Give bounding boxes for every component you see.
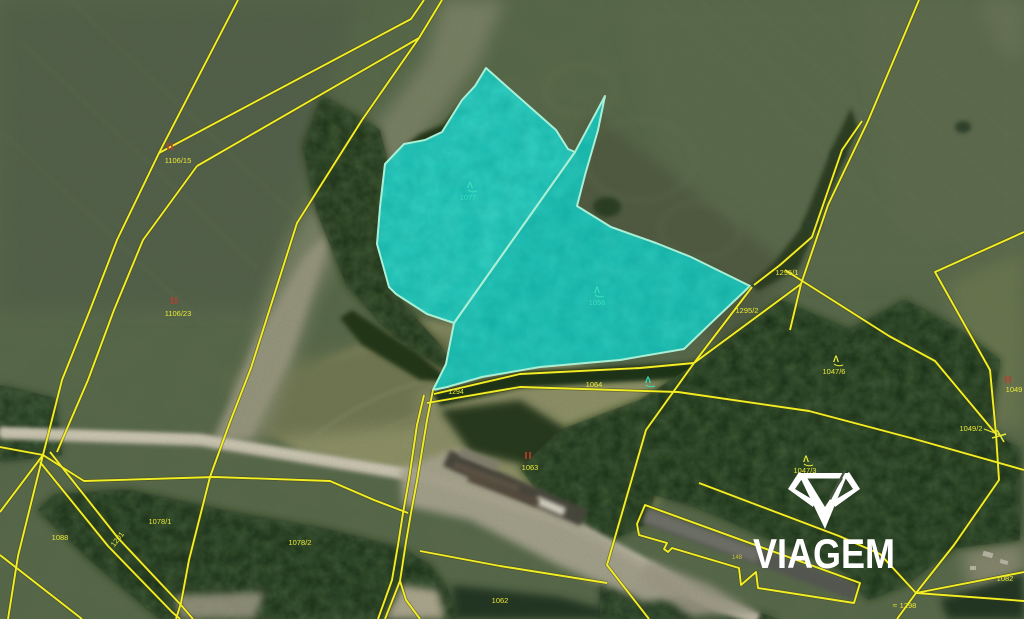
svg-text:1298: 1298: [900, 601, 917, 610]
svg-text:1064: 1064: [586, 380, 603, 389]
svg-text:1078/2: 1078/2: [289, 538, 312, 547]
svg-text:1047/6: 1047/6: [823, 367, 846, 376]
svg-text:Λ: Λ: [594, 285, 600, 295]
svg-text:1295/1: 1295/1: [776, 268, 799, 277]
svg-text:1049/2: 1049/2: [960, 424, 983, 433]
svg-text:1062: 1062: [492, 596, 509, 605]
svg-text:1294: 1294: [448, 389, 464, 396]
svg-text:≈: ≈: [893, 601, 898, 610]
svg-text:1078/1: 1078/1: [149, 517, 172, 526]
svg-text:Λ: Λ: [833, 354, 839, 364]
svg-text:1088: 1088: [52, 533, 69, 542]
svg-text:1295/2: 1295/2: [736, 306, 759, 315]
svg-text:1082: 1082: [997, 574, 1014, 583]
svg-text:148: 148: [732, 555, 743, 561]
svg-text:Λ: Λ: [645, 375, 651, 385]
svg-text:VIAGEM: VIAGEM: [753, 530, 895, 577]
svg-text:1056: 1056: [589, 298, 606, 307]
svg-text:Λ: Λ: [803, 454, 809, 464]
svg-text:Λ: Λ: [467, 180, 473, 190]
svg-text:1063: 1063: [522, 463, 539, 472]
svg-text:1106/23: 1106/23: [165, 309, 192, 318]
svg-text:1077: 1077: [460, 193, 477, 202]
svg-text:1106/15: 1106/15: [165, 156, 192, 165]
svg-text:1049: 1049: [1006, 385, 1023, 394]
